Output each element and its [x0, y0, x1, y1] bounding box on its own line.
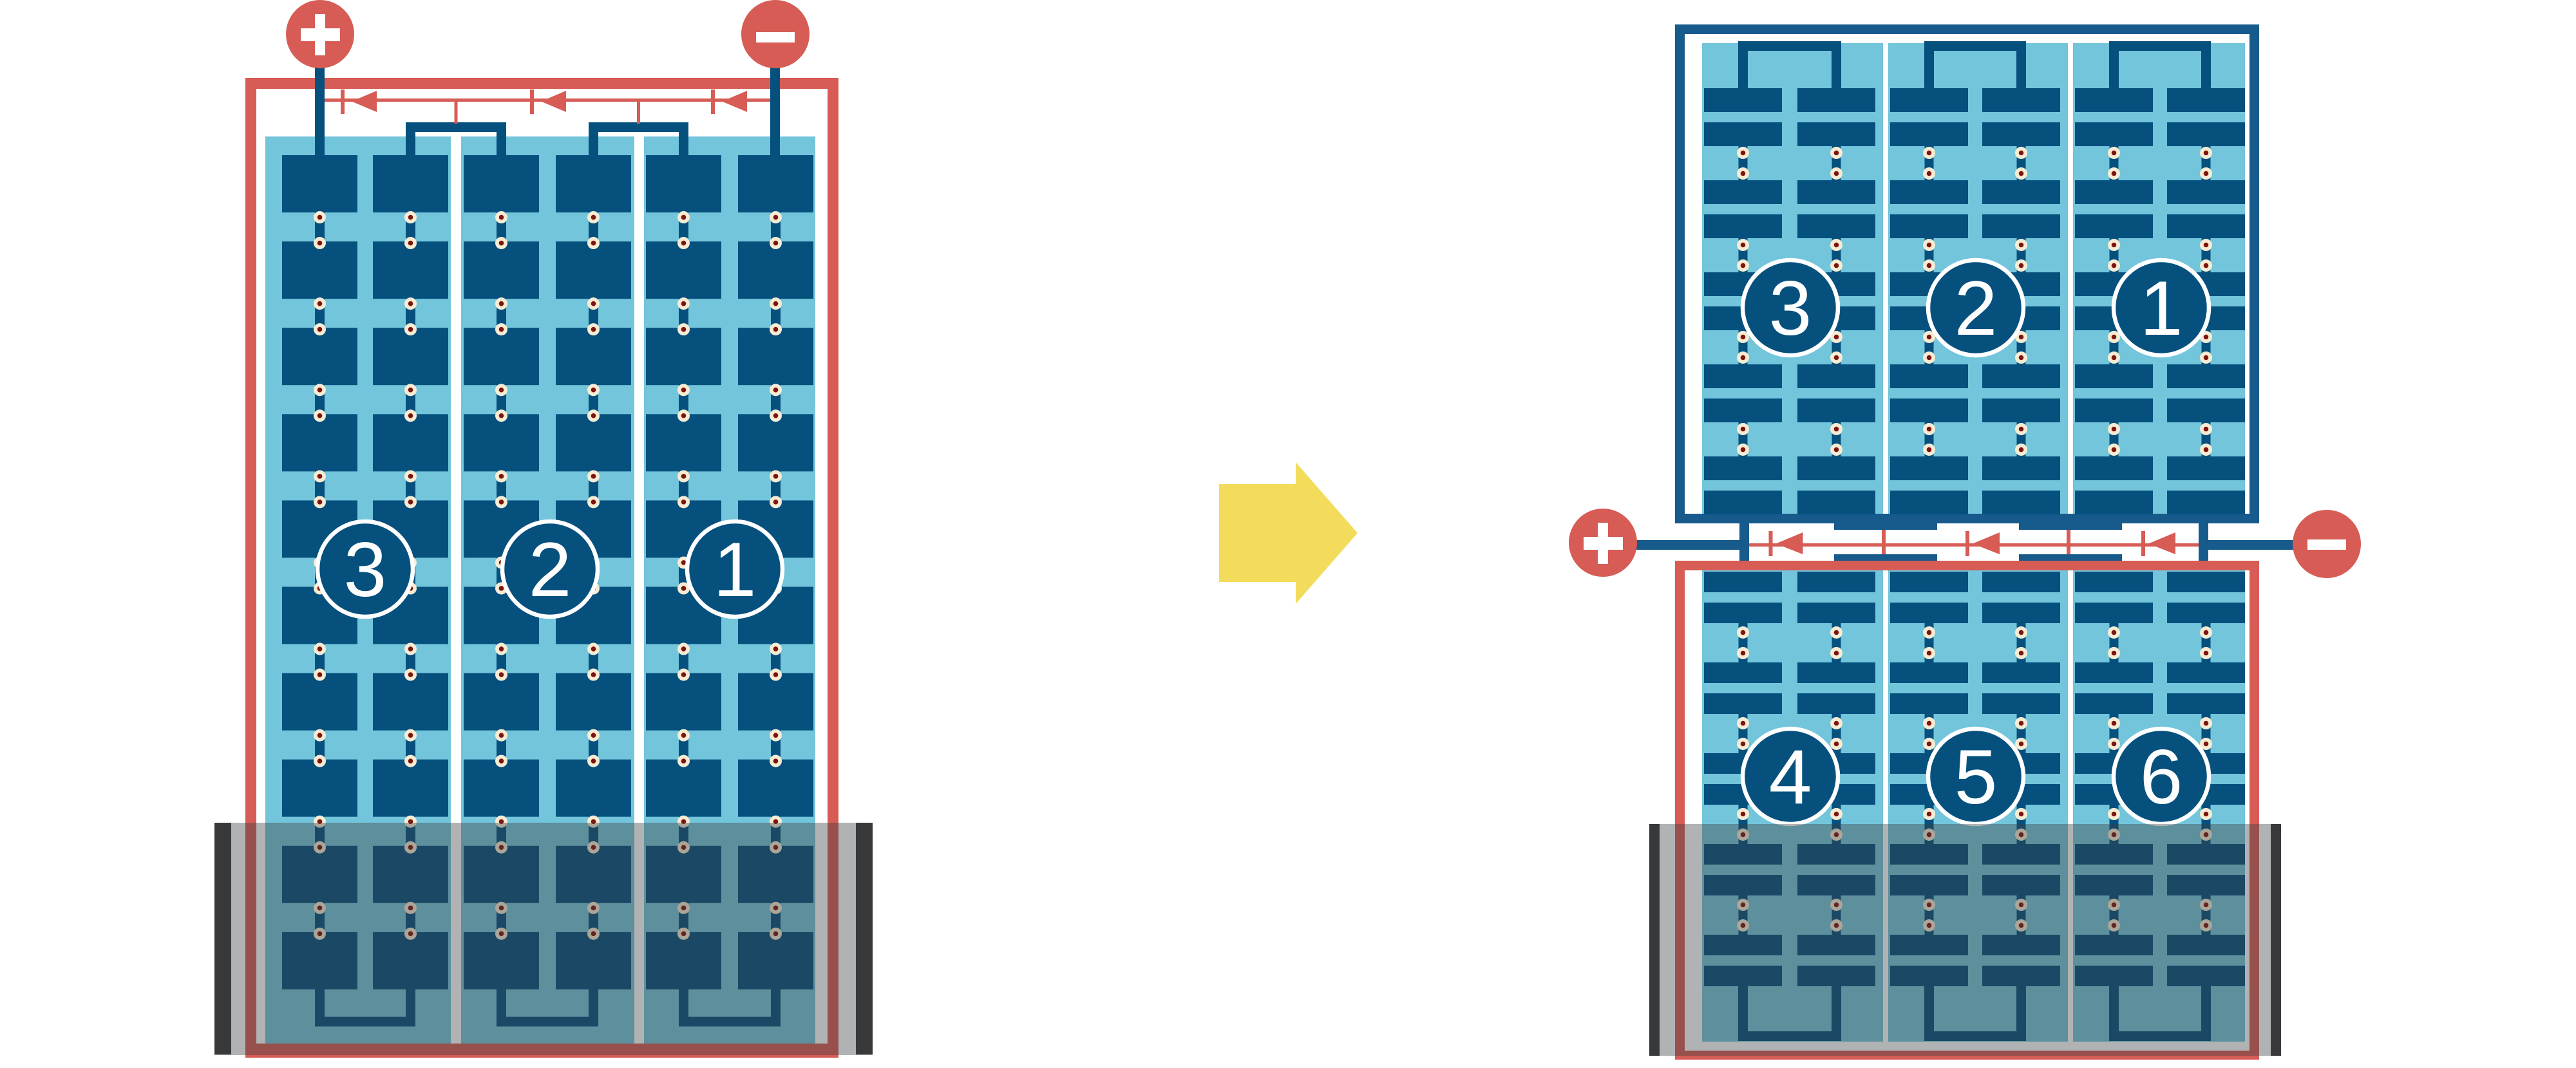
svg-text:1: 1 — [714, 527, 757, 613]
svg-text:5: 5 — [1955, 734, 1998, 820]
svg-text:6: 6 — [2140, 734, 2183, 820]
svg-text:3: 3 — [1769, 265, 1812, 351]
svg-text:2: 2 — [1955, 265, 1998, 351]
svg-text:4: 4 — [1769, 734, 1812, 820]
svg-text:2: 2 — [529, 527, 572, 613]
svg-text:3: 3 — [344, 527, 387, 613]
svg-text:1: 1 — [2140, 265, 2183, 351]
